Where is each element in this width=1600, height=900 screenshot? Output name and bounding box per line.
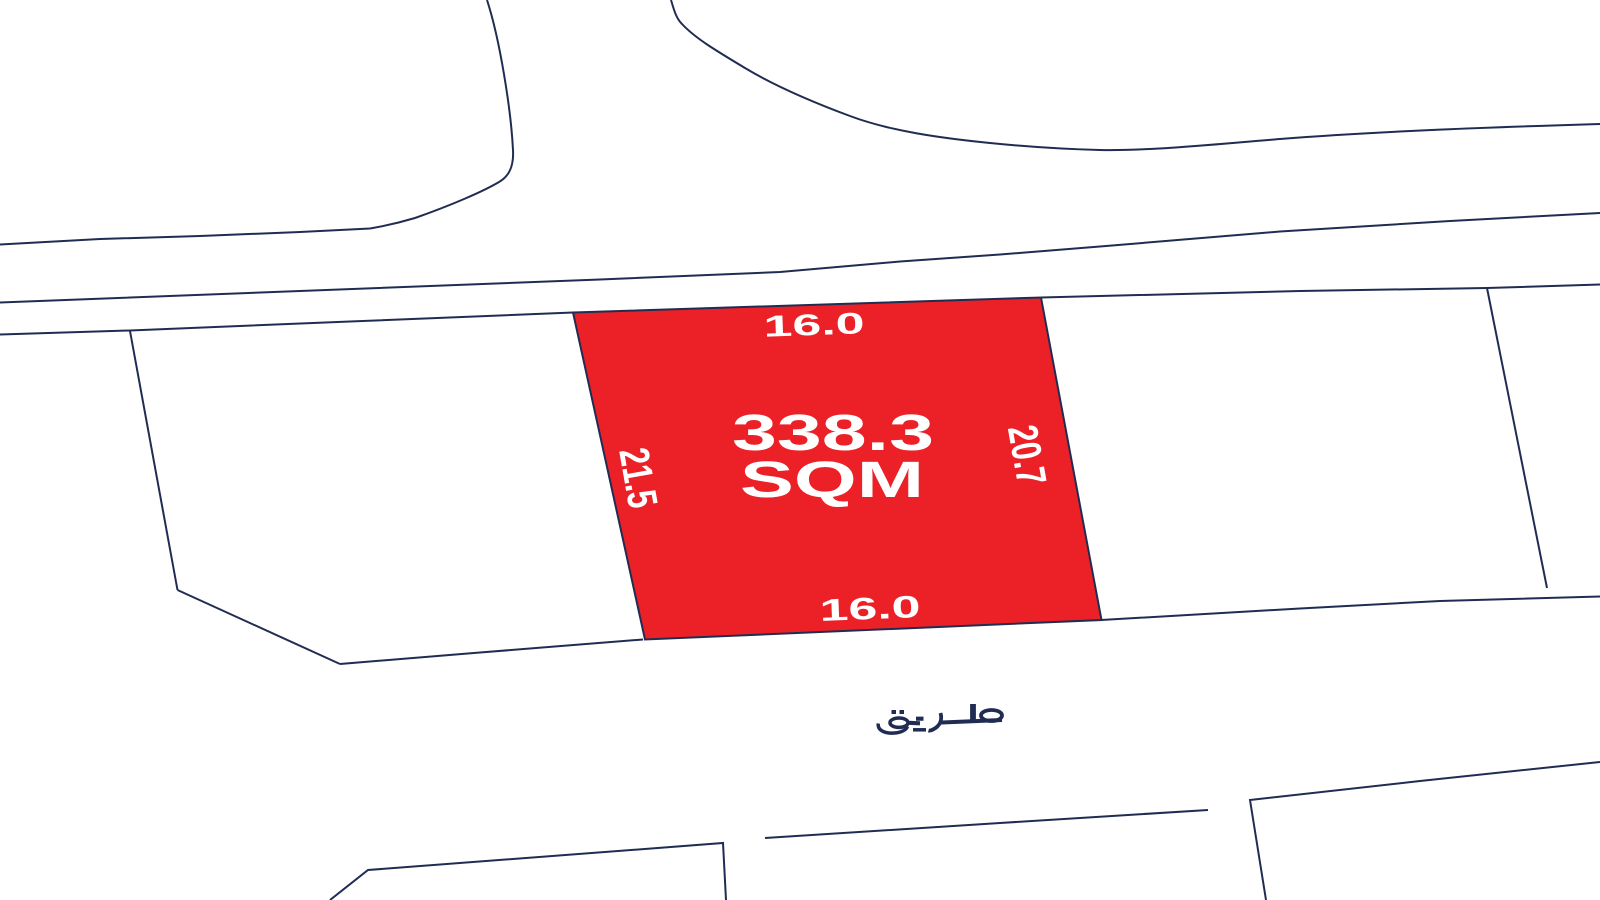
svg-text:16.0: 16.0 (819, 589, 921, 628)
svg-text:SQM: SQM (740, 451, 924, 508)
svg-text:16.0: 16.0 (763, 307, 865, 344)
